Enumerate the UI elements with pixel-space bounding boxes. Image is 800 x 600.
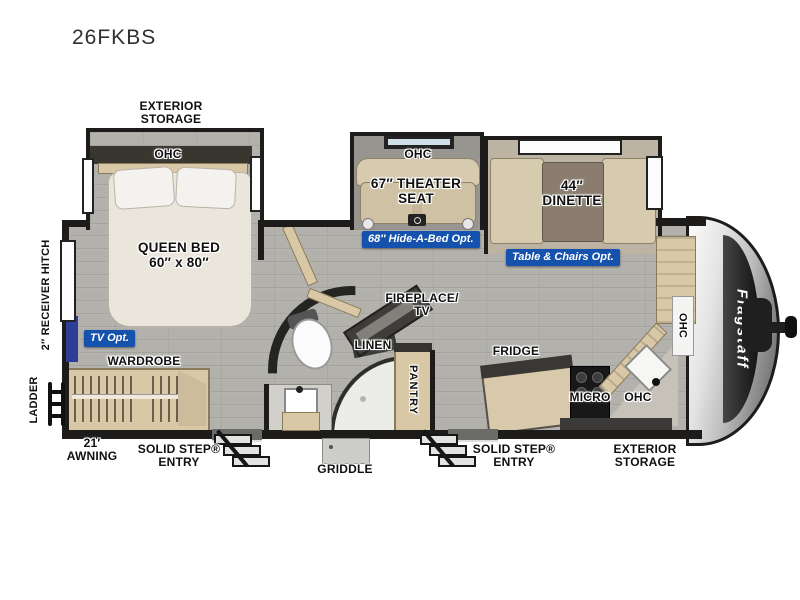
pillow (113, 166, 176, 210)
exterior-storage-bottom-label: EXTERIORSTORAGE (598, 443, 692, 470)
fridge-label: FRIDGE (480, 345, 552, 358)
griddle-icon (322, 438, 370, 464)
hitch-knob-icon (785, 316, 797, 338)
shower-drain (360, 396, 366, 402)
griddle-label: GRIDDLE (303, 463, 387, 476)
wall-stub-bath (264, 384, 269, 430)
theater-ohc-label: OHC (388, 148, 448, 161)
linen-label: LINEN (342, 339, 404, 352)
floorplan-page: 26FKBS Flagstaff (0, 0, 800, 600)
hanger-rack (74, 376, 132, 422)
theater-seat-label: 67″ THEATERSEAT (350, 176, 482, 206)
queen-bed-label: QUEEN BED60″ x 80″ (108, 240, 250, 270)
kitchen-faucet-icon (652, 378, 660, 386)
tv-opt-badge: TV Opt. (84, 330, 135, 347)
hanger-rack (152, 376, 182, 422)
hide-a-bed-badge: 68″ Hide-A-Bed Opt. (362, 231, 480, 248)
theater-foot (462, 218, 474, 230)
tv-location (66, 316, 78, 362)
receiver-hitch-label: 2″ RECEIVER HITCH (40, 240, 52, 351)
page-title: 26FKBS (72, 26, 156, 50)
bedroom-ohc-label: OHC (138, 148, 198, 161)
vanity-cabinet (282, 412, 320, 431)
wardrobe-end (178, 370, 206, 426)
cupholder-icon (408, 214, 426, 226)
wall-top-right (656, 218, 706, 226)
awning-label: 21′AWNING (50, 437, 134, 464)
bedroom-window-right (250, 156, 262, 212)
dinette-label: 44″DINETTE (512, 178, 632, 208)
front-wall-ohc-label: OHC (674, 300, 691, 352)
pillow (175, 166, 237, 209)
wall-bottom (62, 430, 702, 439)
wardrobe (66, 368, 210, 432)
fireplace-tv-label: FIREPLACE/TV (366, 292, 478, 319)
ladder-label: LADDER (28, 376, 40, 423)
wall-top-mid (258, 220, 354, 227)
ladder-icon (46, 382, 68, 426)
dinette-window-right (646, 156, 663, 210)
bedroom-window-left (82, 158, 94, 214)
theater-foot (362, 218, 374, 230)
table-chairs-badge: Table & Chairs Opt. (506, 249, 620, 266)
bath-faucet-icon (296, 386, 303, 393)
rear-window (60, 240, 76, 322)
entry2-label: SOLID STEP®ENTRY (458, 443, 570, 470)
wall-stub-bedroom (258, 226, 264, 260)
entry1-label: SOLID STEP®ENTRY (124, 443, 234, 470)
kitchen-ohc-label: OHC (612, 391, 664, 404)
dinette-window-top (518, 139, 622, 155)
wall-stub-pantry (430, 350, 435, 430)
pantry-label: PANTRY (398, 352, 428, 428)
wardrobe-label: WARDROBE (94, 355, 194, 368)
exterior-storage-top-label: EXTERIORSTORAGE (116, 100, 226, 127)
micro-label: MICRO (560, 391, 620, 404)
